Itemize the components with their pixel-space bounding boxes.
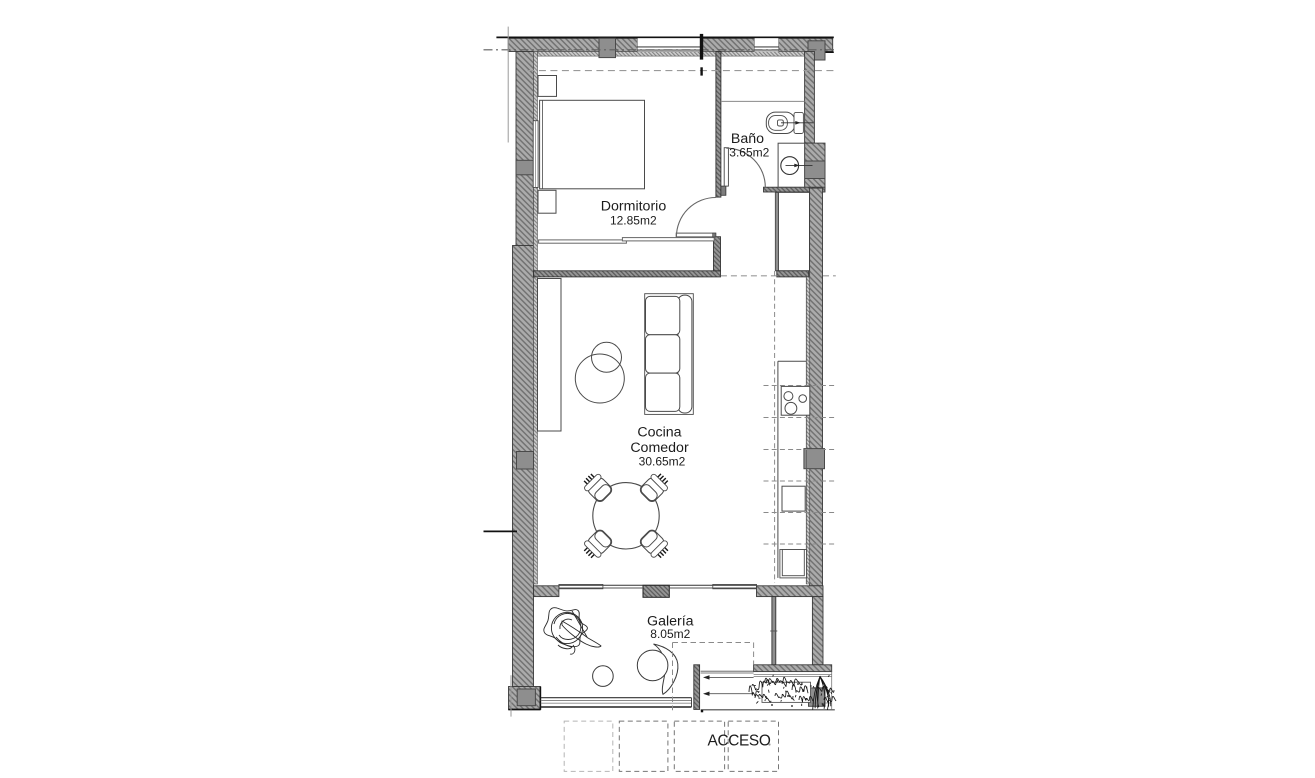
svg-text:12.85m2: 12.85m2 bbox=[610, 213, 657, 227]
svg-text:30.65m2: 30.65m2 bbox=[639, 454, 686, 468]
svg-text:Cocina: Cocina bbox=[637, 424, 681, 440]
svg-text:3.65m2: 3.65m2 bbox=[729, 145, 769, 159]
svg-text:8.05m2: 8.05m2 bbox=[650, 627, 690, 641]
svg-text:ACCESO: ACCESO bbox=[708, 733, 771, 750]
svg-text:Comedor: Comedor bbox=[630, 440, 689, 456]
svg-text:Dormitorio: Dormitorio bbox=[601, 198, 667, 214]
